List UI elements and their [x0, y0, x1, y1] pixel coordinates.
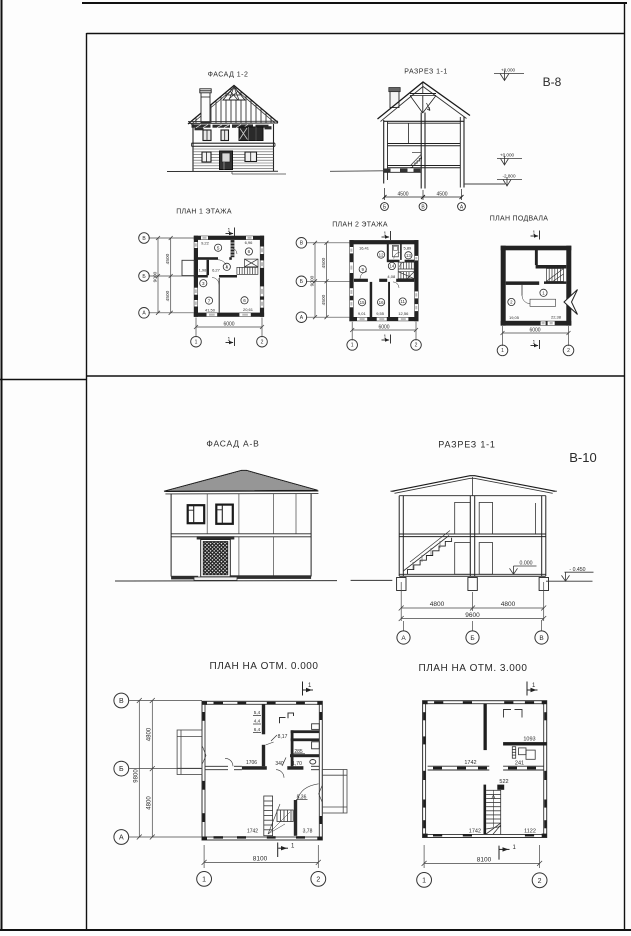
svg-text:241: 241: [515, 761, 524, 767]
svg-text:41,50: 41,50: [205, 308, 216, 313]
svg-text:1742: 1742: [469, 828, 481, 834]
svg-text:8100: 8100: [477, 856, 492, 863]
svg-text:1: 1: [384, 232, 387, 238]
svg-text:1: 1: [532, 683, 536, 689]
svg-text:22,38: 22,38: [551, 314, 562, 319]
svg-text:1: 1: [308, 683, 312, 689]
svg-text:9800: 9800: [133, 769, 139, 783]
svg-text:5: 5: [217, 245, 220, 250]
svg-text:1,70: 1,70: [292, 761, 302, 767]
svg-text:15: 15: [360, 300, 365, 305]
svg-text:-2,800: -2,800: [502, 174, 515, 179]
svg-text:1093: 1093: [523, 737, 535, 743]
svg-text:2: 2: [538, 878, 542, 885]
svg-text:4500: 4500: [165, 253, 171, 264]
svg-text:1: 1: [533, 340, 536, 346]
svg-text:9,55: 9,55: [376, 311, 385, 316]
svg-text:6000: 6000: [529, 328, 540, 334]
svg-text:16,41: 16,41: [359, 245, 370, 250]
svg-text:4500: 4500: [165, 290, 171, 301]
svg-text:Б: Б: [300, 279, 304, 285]
svg-text:Б: Б: [470, 635, 474, 642]
svg-text:0.000: 0.000: [520, 560, 533, 566]
svg-text:ФАСАД 1-2: ФАСАД 1-2: [208, 72, 249, 79]
svg-text:522: 522: [499, 779, 508, 785]
svg-text:1: 1: [228, 337, 231, 343]
svg-text:1: 1: [202, 876, 206, 883]
svg-text:4500: 4500: [397, 192, 408, 198]
svg-text:В: В: [300, 241, 304, 247]
svg-text:А: А: [401, 635, 406, 642]
svg-text:1: 1: [228, 228, 231, 234]
svg-text:1: 1: [533, 231, 536, 237]
svg-text:5,89: 5,89: [404, 245, 413, 250]
svg-text:В-8: В-8: [543, 75, 562, 89]
svg-text:1: 1: [384, 335, 387, 341]
svg-text:+8,000: +8,000: [501, 68, 516, 73]
svg-text:3: 3: [202, 281, 205, 286]
svg-text:2: 2: [567, 348, 570, 354]
svg-text:6: 6: [243, 298, 246, 303]
svg-text:4500: 4500: [321, 294, 327, 305]
svg-text:В: В: [539, 635, 543, 642]
svg-text:5,4: 5,4: [254, 710, 261, 715]
svg-text:РАЗРЕЗ 1-1: РАЗРЕЗ 1-1: [438, 440, 496, 450]
svg-text:1: 1: [501, 348, 504, 354]
svg-text:4,08: 4,08: [387, 274, 396, 279]
svg-text:4800: 4800: [501, 601, 516, 608]
svg-text:6: 6: [248, 249, 251, 254]
svg-text:9600: 9600: [465, 612, 480, 619]
svg-text:4: 4: [226, 265, 229, 270]
svg-text:В: В: [142, 236, 146, 242]
svg-text:А: А: [300, 315, 304, 321]
svg-text:+0,000: +0,000: [500, 153, 515, 158]
svg-text:1: 1: [291, 844, 295, 850]
svg-text:3,78: 3,78: [303, 829, 313, 835]
svg-text:4800: 4800: [146, 727, 152, 741]
svg-text:16: 16: [379, 300, 384, 305]
svg-text:ФАСАД А-В: ФАСАД А-В: [206, 439, 259, 449]
svg-text:19,05: 19,05: [509, 315, 520, 320]
svg-text:1: 1: [513, 845, 517, 851]
svg-text:1742: 1742: [464, 760, 476, 766]
svg-text:9000: 9000: [309, 275, 315, 286]
svg-text:12: 12: [379, 252, 384, 257]
svg-text:1706: 1706: [246, 760, 257, 766]
svg-text:13: 13: [406, 253, 411, 258]
svg-text:6000: 6000: [223, 322, 234, 328]
svg-text:9,01: 9,01: [358, 311, 367, 316]
svg-text:ПЛАН 1 ЭТАЖА: ПЛАН 1 ЭТАЖА: [176, 209, 232, 216]
svg-text:4500: 4500: [321, 257, 327, 268]
svg-text:ПЛАН ПОДВАЛА: ПЛАН ПОДВАЛА: [490, 216, 549, 223]
svg-text:1122: 1122: [524, 828, 536, 834]
svg-text:А: А: [142, 311, 146, 317]
svg-text:4500: 4500: [436, 192, 447, 198]
svg-text:В: В: [119, 698, 124, 705]
svg-text:В-10: В-10: [569, 450, 596, 465]
svg-text:1: 1: [542, 291, 545, 296]
svg-text:8100: 8100: [253, 855, 268, 862]
svg-text:12,56: 12,56: [398, 311, 409, 316]
svg-text:А: А: [119, 835, 124, 842]
svg-text:2: 2: [415, 343, 418, 349]
svg-text:1,98: 1,98: [199, 268, 208, 273]
svg-text:6,96: 6,96: [245, 240, 254, 245]
svg-text:4,4: 4,4: [254, 719, 261, 724]
svg-text:14: 14: [389, 264, 394, 269]
svg-text:Б: Б: [119, 766, 124, 773]
svg-text:2: 2: [510, 300, 513, 305]
svg-text:6,27: 6,27: [212, 268, 221, 273]
svg-text:9000: 9000: [152, 271, 158, 282]
svg-text:РАЗРЕЗ 1-1: РАЗРЕЗ 1-1: [404, 69, 448, 76]
svg-text:ПЛАН 2 ЭТАЖА: ПЛАН 2 ЭТАЖА: [332, 222, 388, 229]
svg-text:4800: 4800: [146, 796, 152, 810]
svg-text:ПЛАН НА ОТМ. 3.000: ПЛАН НА ОТМ. 3.000: [419, 663, 528, 674]
svg-text:9,22: 9,22: [201, 241, 210, 246]
svg-text:ПЛАН НА ОТМ. 0.000: ПЛАН НА ОТМ. 0.000: [210, 661, 319, 672]
svg-text:6000: 6000: [378, 325, 389, 331]
svg-text:7: 7: [208, 298, 211, 303]
svg-text:8,17: 8,17: [278, 734, 288, 740]
svg-text:1: 1: [195, 340, 198, 346]
svg-text:1: 1: [422, 877, 426, 884]
svg-text:2: 2: [316, 876, 320, 883]
svg-text:9: 9: [361, 267, 364, 272]
svg-text:Б: Б: [142, 274, 146, 280]
svg-text:- 0.450: - 0.450: [569, 567, 585, 573]
svg-text:4800: 4800: [430, 601, 445, 608]
svg-text:20,61: 20,61: [243, 307, 254, 312]
svg-text:2: 2: [261, 340, 264, 346]
svg-text:6,4: 6,4: [254, 727, 261, 732]
svg-text:1742: 1742: [247, 829, 258, 835]
svg-text:340: 340: [275, 761, 284, 767]
svg-text:1: 1: [351, 343, 354, 349]
svg-text:11: 11: [400, 299, 405, 304]
